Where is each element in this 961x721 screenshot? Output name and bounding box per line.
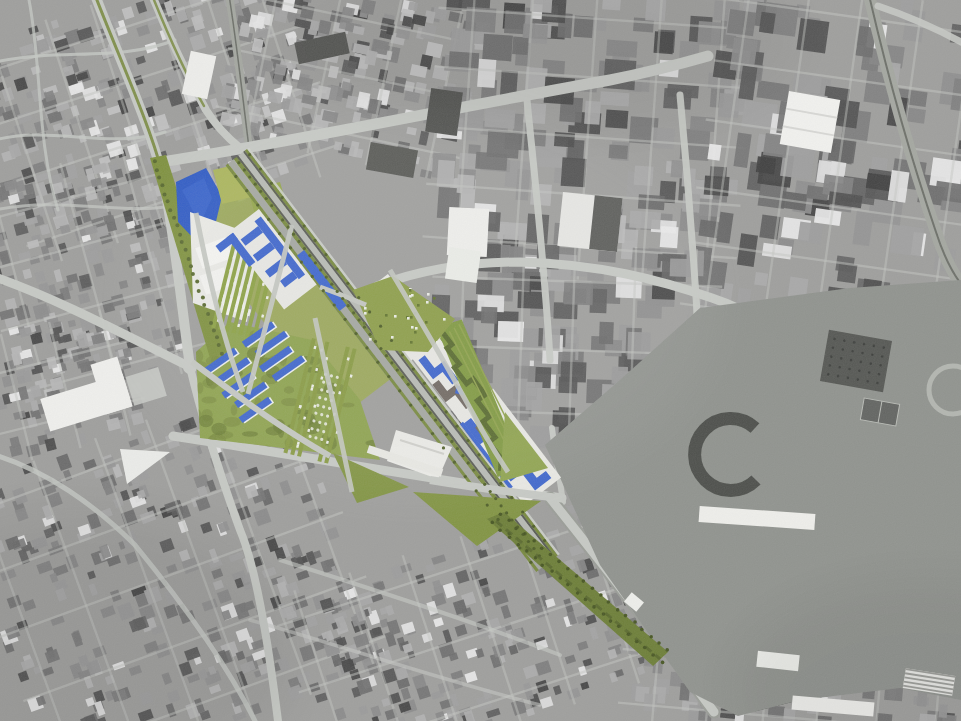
photo-grain bbox=[0, 0, 961, 721]
masterplan-aerial-map bbox=[0, 0, 961, 721]
aerial-map-canvas bbox=[0, 0, 961, 721]
